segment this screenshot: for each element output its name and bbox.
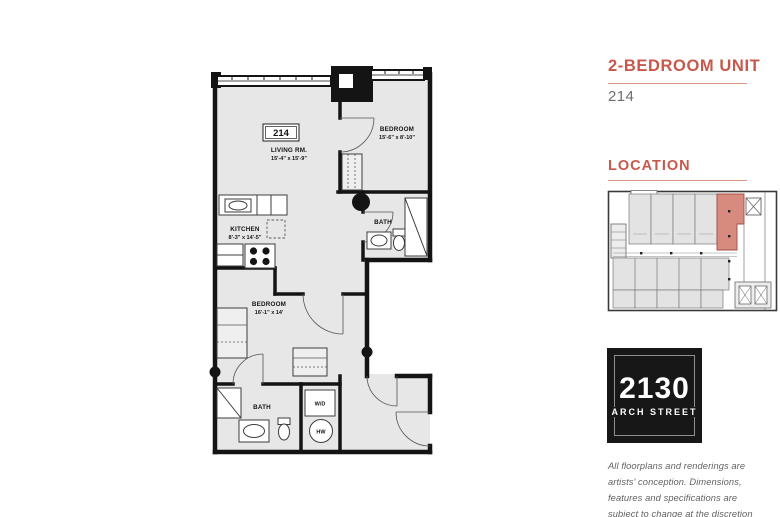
elevator-core-top xyxy=(746,198,761,215)
living-room-windows xyxy=(217,76,331,86)
unit-number-box: 214 xyxy=(263,124,299,141)
label-bath-2: BATH xyxy=(253,404,271,411)
bath1-toilet xyxy=(393,229,405,236)
label-bedroom-1: BEDROOM xyxy=(380,126,414,133)
location-map xyxy=(607,190,778,312)
building-logo: 2130 ARCH STREET xyxy=(607,348,702,443)
label-living-room-dims: 15'-4" x 15'-9" xyxy=(271,156,307,162)
label-bedroom-1-dims: 15'-6" x 8'-10" xyxy=(379,135,415,141)
label-bath-1: BATH xyxy=(374,219,392,226)
bedroom1-closet xyxy=(342,154,362,190)
label-water-heater: HW xyxy=(316,430,326,436)
plan-unit-number: 214 xyxy=(273,128,290,139)
floorplan-svg: 214 LIVING RM. 15'-4" x 15'-9" BEDROOM 1… xyxy=(205,62,445,462)
label-kitchen-dims: 8'-3" x 14'-5" xyxy=(229,235,262,241)
location-heading: LOCATION xyxy=(608,158,747,181)
disclaimer-text: All floorplans and renderings are artist… xyxy=(608,459,760,517)
map-units-top xyxy=(629,194,717,244)
unit-type-title: 2-BEDROOM UNIT xyxy=(608,57,747,84)
logo-text: 2130 ARCH STREET xyxy=(607,348,702,443)
label-washer-dryer: W/D xyxy=(315,402,326,408)
label-bedroom-2: BEDROOM xyxy=(252,301,286,308)
shaft xyxy=(331,66,373,102)
location-map-svg xyxy=(607,190,778,312)
unit-number: 214 xyxy=(608,88,634,105)
logo-address-number: 2130 xyxy=(616,374,693,404)
label-living-room: LIVING RM. xyxy=(271,147,307,154)
floorplan-page: 214 LIVING RM. 15'-4" x 15'-9" BEDROOM 1… xyxy=(0,0,780,517)
logo-street-name: ARCH STREET xyxy=(609,407,699,417)
stove xyxy=(245,244,275,268)
map-units-bottom xyxy=(613,258,729,308)
bedroom-windows xyxy=(371,67,432,80)
label-bedroom-2-dims: 16'-1" x 14' xyxy=(255,310,284,316)
label-kitchen: KITCHEN xyxy=(230,226,260,233)
elevator-core-bottom xyxy=(735,282,771,308)
floorplan-drawing: 214 LIVING RM. 15'-4" x 15'-9" BEDROOM 1… xyxy=(205,62,445,462)
